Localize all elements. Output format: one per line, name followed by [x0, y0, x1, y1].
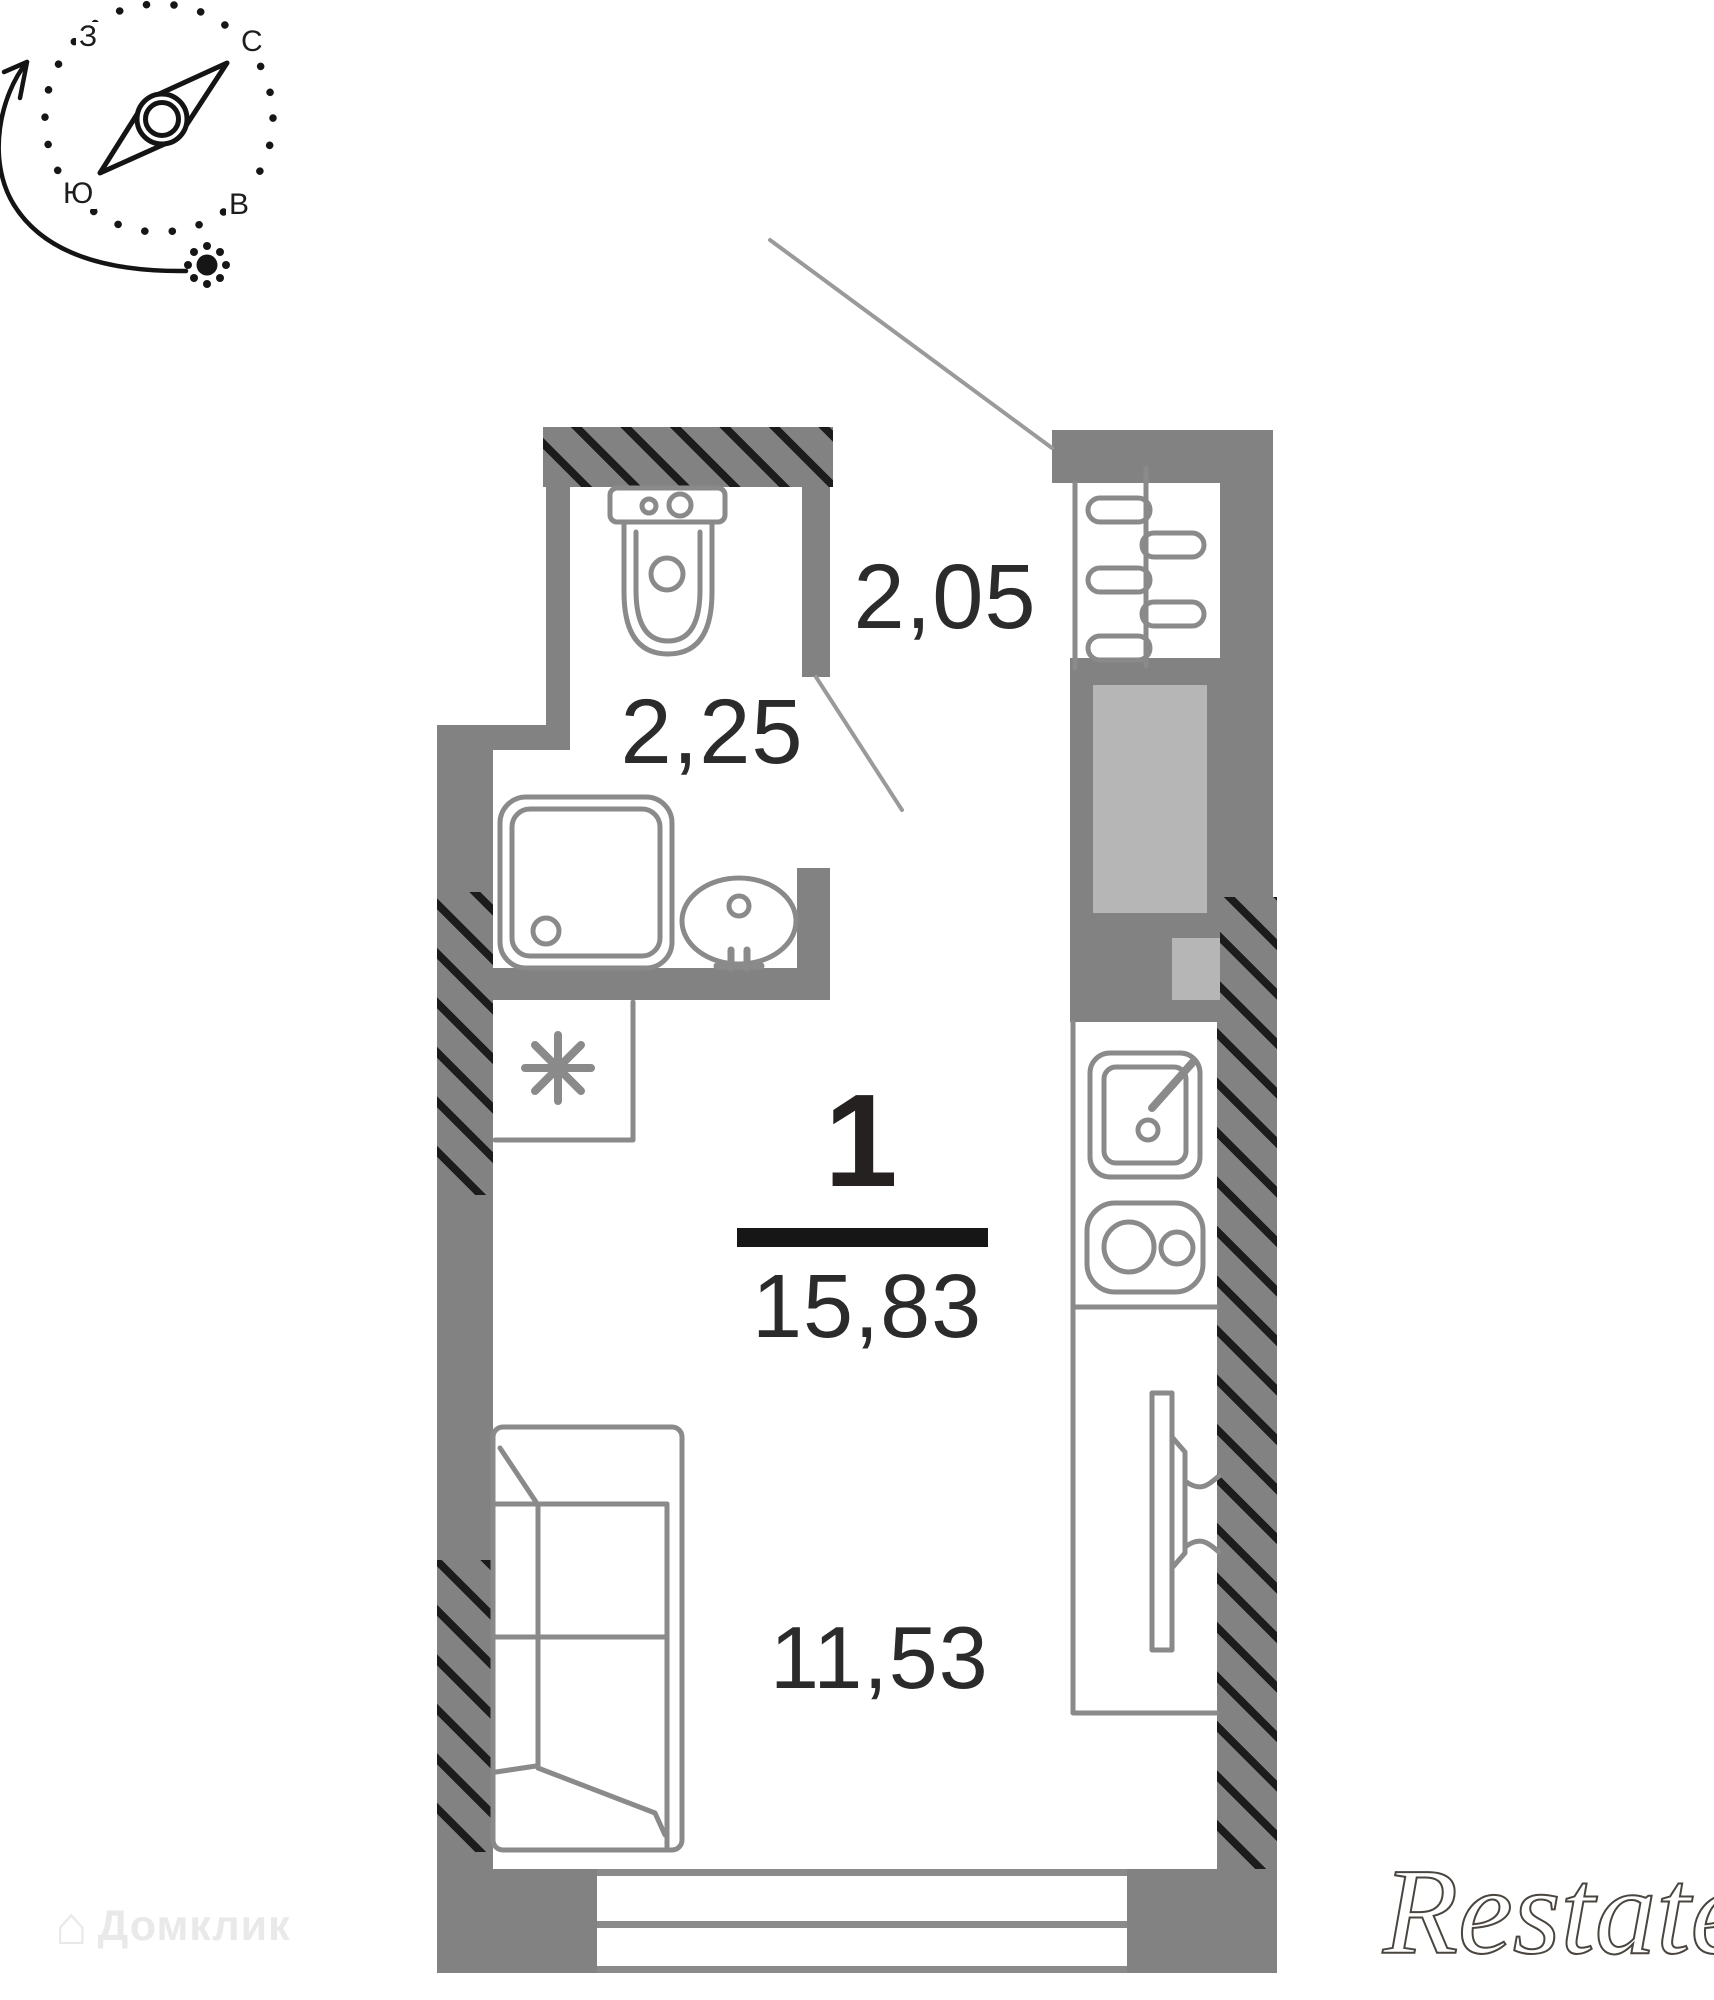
stove-icon: [1087, 1203, 1203, 1292]
watermark-restate: Restate: [1383, 1850, 1714, 1973]
watermark-domclick: ⌂ Домклик: [55, 1899, 291, 1953]
bathroom-area-label: 2,25: [612, 675, 812, 790]
compass-label-east: В: [226, 190, 252, 220]
kitchen-sink-icon: [1090, 1053, 1200, 1177]
shower-icon: [500, 797, 672, 968]
washing-machine-spot-icon: [495, 1002, 633, 1140]
floorplan-screenshot: З С Ю В 2,05 2,25 11,53 1 15,83 ⌂ Домкли…: [0, 0, 1714, 2000]
watermark-domclick-text: Домклик: [98, 1902, 291, 1951]
bathroom-door-leader-line: [816, 677, 902, 810]
compass-label-west: З: [76, 22, 100, 52]
summary-divider-line: [737, 1228, 988, 1247]
entrance-door-leader-line: [770, 240, 1052, 448]
total-area-label: 15,83: [752, 1251, 972, 1364]
toilet-icon: [610, 488, 725, 654]
hallway-area-label: 2,05: [845, 540, 1045, 655]
compass-label-south: Ю: [60, 179, 96, 209]
house-icon: ⌂: [55, 1899, 88, 1953]
kitchen-counter-outline: [1073, 1022, 1217, 1713]
sun-icon: [184, 242, 230, 288]
compass-rose: [0, 4, 273, 288]
compass-label-north: С: [238, 27, 266, 57]
living-room-area-label: 11,53: [770, 1603, 975, 1713]
bathroom-sink-icon: [682, 878, 796, 968]
sofa-icon: [493, 1427, 682, 1850]
radiator-icon: [1088, 468, 1204, 666]
wall-mounted-tv-icon: [1152, 1393, 1219, 1650]
rooms-count: 1: [761, 1075, 961, 1207]
